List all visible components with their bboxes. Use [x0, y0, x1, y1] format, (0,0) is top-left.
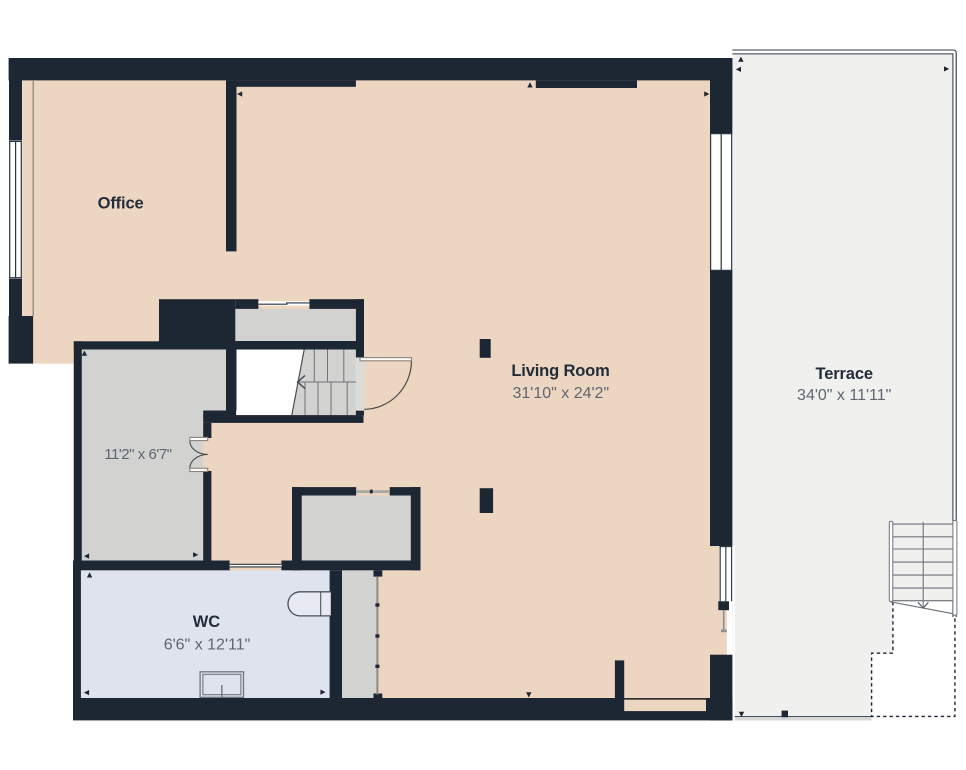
- svg-text:34'0" x 11'11": 34'0" x 11'11": [797, 387, 891, 404]
- svg-text:Terrace: Terrace: [816, 365, 873, 383]
- svg-text:WC: WC: [193, 613, 220, 631]
- svg-text:Office: Office: [98, 195, 144, 213]
- svg-text:11'2" x 6'7": 11'2" x 6'7": [104, 446, 172, 463]
- svg-text:Living Room: Living Room: [511, 362, 609, 380]
- svg-text:6'6" x 12'11": 6'6" x 12'11": [164, 637, 251, 654]
- svg-text:31'10" x 24'2": 31'10" x 24'2": [512, 385, 609, 402]
